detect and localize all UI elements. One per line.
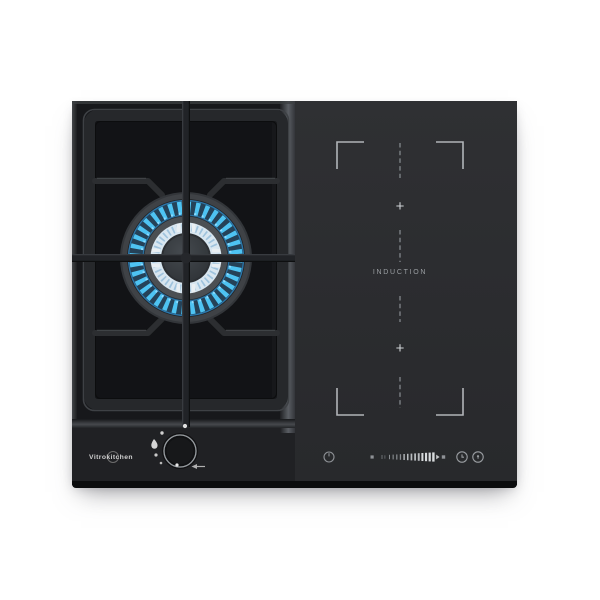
knob-position-marker bbox=[175, 463, 178, 466]
min-flame-dot-icon bbox=[160, 462, 163, 465]
power-icon[interactable] bbox=[324, 452, 334, 462]
zone-select-left-key[interactable] bbox=[371, 455, 374, 458]
ignite-dot-icon bbox=[160, 431, 163, 434]
flex-zone-plus-bottom: + bbox=[390, 340, 410, 358]
brand-logo: Vitrokitchen bbox=[81, 453, 141, 462]
studio-backdrop: { "product": { "brand": "Vitrokitchen", … bbox=[0, 0, 600, 600]
flex-zone-plus-top: + bbox=[390, 198, 410, 216]
zone-select-right-key[interactable] bbox=[442, 455, 445, 458]
hob-bottom-edge bbox=[72, 481, 517, 488]
small-flame-dot-icon bbox=[154, 453, 157, 456]
gas-section bbox=[72, 101, 295, 485]
lock-icon[interactable] bbox=[473, 452, 483, 462]
induction-section bbox=[295, 101, 517, 485]
gas-section-graphics bbox=[72, 101, 295, 485]
flex-zone-brackets bbox=[337, 142, 463, 415]
power-level-slider[interactable] bbox=[382, 452, 440, 461]
timer-icon[interactable] bbox=[457, 452, 467, 462]
touch-control-strip bbox=[324, 452, 483, 462]
off-dot-icon bbox=[183, 424, 187, 428]
cooktop: Vitrokitchen INDUCTION + + bbox=[72, 101, 517, 485]
gas-control-knob[interactable] bbox=[163, 434, 198, 469]
induction-label: INDUCTION bbox=[360, 268, 440, 277]
induction-graphics bbox=[295, 101, 517, 485]
